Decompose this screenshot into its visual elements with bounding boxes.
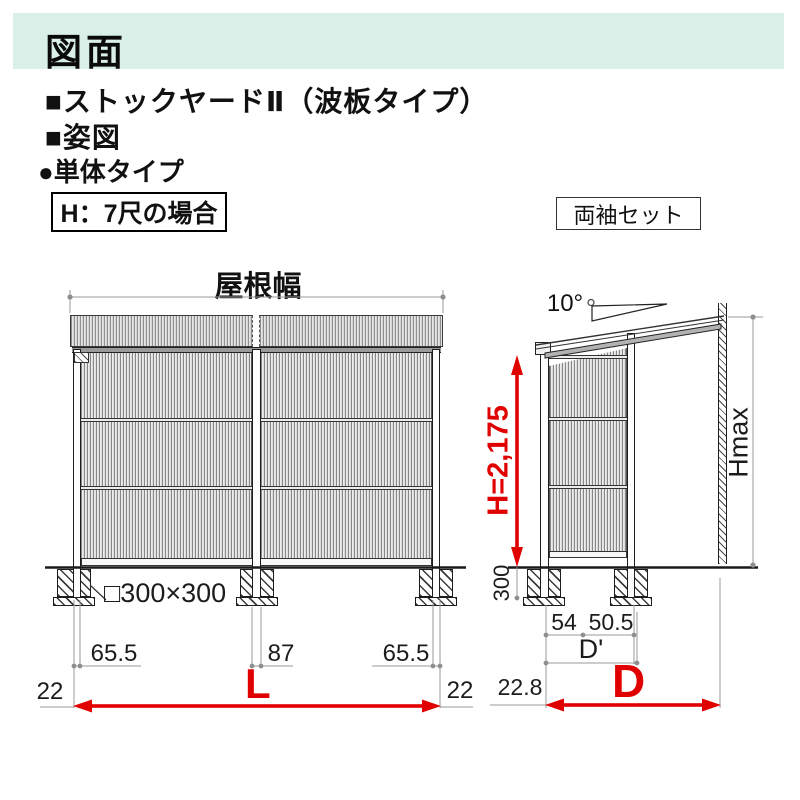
unit-type-heading: ●単体タイプ xyxy=(38,152,184,189)
set-type-label: 両袖セット xyxy=(573,198,683,230)
height-dim-label: H=2,175 xyxy=(483,361,516,561)
side-post-front xyxy=(540,346,549,598)
side-dim-post: 54 xyxy=(546,609,582,636)
side-rail-top xyxy=(549,355,627,359)
roof-width-label: 屋根幅 xyxy=(198,263,318,305)
front-wall-panel-right xyxy=(261,353,432,558)
height-case-box: H：7尺の場合 xyxy=(51,192,227,232)
set-type-box: 両袖セット xyxy=(556,197,701,230)
front-offset-right: 22 xyxy=(440,677,480,705)
side-rail-lower xyxy=(549,485,627,489)
side-bottom-rail xyxy=(549,551,627,558)
side-rail-upper xyxy=(549,417,627,421)
height-case-label: H：7尺の場合 xyxy=(61,194,218,230)
foundation-size-label: □300×300 xyxy=(104,578,226,609)
side-base-rear xyxy=(610,597,652,606)
front-post-left xyxy=(73,349,81,598)
width-symbol-label: L xyxy=(245,660,271,708)
page-title: 図面 xyxy=(45,22,127,76)
drawing-page: 図面 ■ストックヤードⅡ（波板タイプ） ■姿図 ●単体タイプ H：7尺の場合 両… xyxy=(0,0,800,800)
front-dim-right: 65.5 xyxy=(376,640,436,668)
roof-angle-label: 10° xyxy=(540,290,590,318)
front-dim-left: 65.5 xyxy=(84,640,144,668)
inner-depth-label: D' xyxy=(570,634,612,665)
side-post-rear xyxy=(627,333,635,598)
front-post-right xyxy=(432,349,440,598)
side-wall-panel xyxy=(549,338,627,558)
embed-depth-label: 300 xyxy=(489,551,515,615)
product-heading: ■ストックヤードⅡ（波板タイプ） xyxy=(45,80,488,120)
front-offset-left: 22 xyxy=(30,678,70,706)
depth-symbol-label: D xyxy=(612,654,645,708)
side-offset-front: 22.8 xyxy=(492,674,548,701)
hmax-label: Hmax xyxy=(724,368,755,518)
header-bar: 図面 xyxy=(13,13,784,69)
front-roof-joint xyxy=(252,315,260,347)
view-heading: ■姿図 xyxy=(45,116,121,156)
foundation-base-left xyxy=(53,597,95,606)
front-post-center xyxy=(252,349,261,598)
foundation-base-center xyxy=(236,597,278,606)
side-gutter-cap xyxy=(535,342,551,355)
side-base-front xyxy=(523,597,565,606)
side-dim-eave: 50.5 xyxy=(584,609,638,636)
slope-wedge-icon xyxy=(592,304,667,321)
foundation-base-right xyxy=(415,597,457,606)
front-gutter-bracket xyxy=(74,352,89,363)
front-wall-panel-left xyxy=(81,353,252,558)
